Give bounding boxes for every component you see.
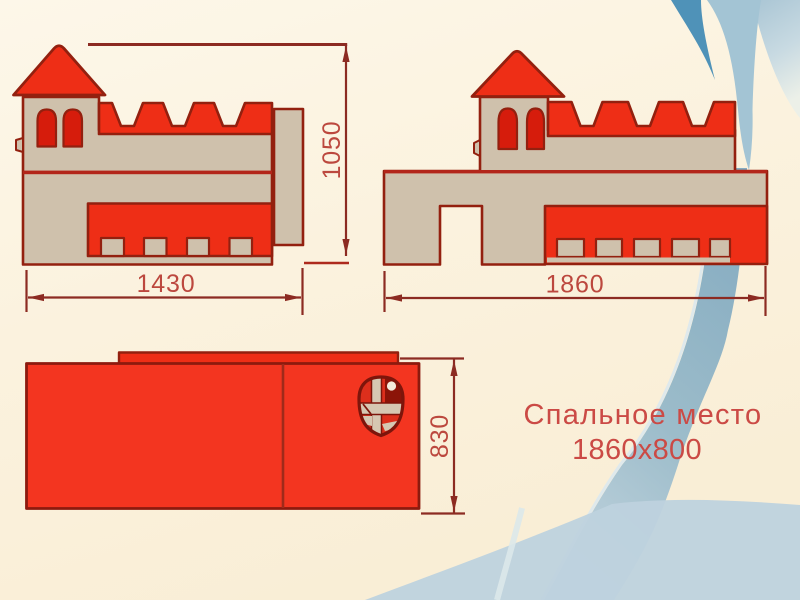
svg-text:1860: 1860 xyxy=(546,271,605,299)
svg-text:1430: 1430 xyxy=(137,270,196,298)
svg-text:1050: 1050 xyxy=(318,121,346,180)
svg-text:1860х800: 1860х800 xyxy=(572,434,702,466)
svg-text:Спальное место: Спальное место xyxy=(524,399,763,431)
svg-text:830: 830 xyxy=(426,414,454,458)
